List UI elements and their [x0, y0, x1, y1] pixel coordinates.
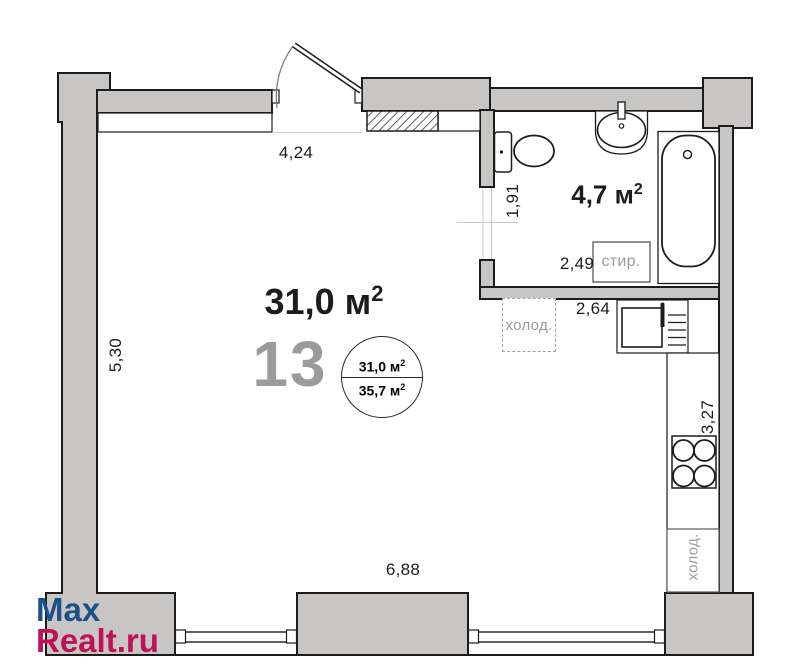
wall-bath-top-band — [490, 88, 705, 111]
watermark-line2: Realt.ru — [36, 625, 159, 656]
bathroom-area-label: 4,7 м2 — [571, 180, 643, 211]
wall-bottom-right — [665, 593, 753, 655]
wall-bottom-middle — [297, 593, 468, 655]
washer-label: стир. — [601, 253, 640, 271]
dim-top: 4,24 — [279, 143, 313, 163]
wall-top-right-block — [703, 78, 752, 128]
bathtub-icon — [658, 132, 719, 284]
fridge-label: холод. — [506, 317, 553, 334]
kitchen-sink-icon — [617, 300, 688, 353]
window-right-icon — [469, 630, 665, 643]
wall-bath-left-upper — [480, 110, 494, 187]
floor-plan: 4,24 5,30 6,88 1,91 2,49 2,64 3,27 31,0 … — [0, 0, 800, 667]
dim-kitchen-height: 3,27 — [698, 400, 718, 434]
bathroom-area-value: 4,7 м — [571, 180, 634, 210]
unit-number: 13 — [252, 327, 327, 401]
main-room-area-label: 31,0 м2 — [265, 281, 384, 323]
stove-icon — [672, 436, 716, 488]
fridge-lower-label: холод. — [685, 534, 702, 581]
dim-bath-width: 2,49 — [560, 254, 594, 274]
dim-bath-height: 1,91 — [503, 184, 523, 218]
area-badge: 31,0 м2 35,7 м2 — [341, 336, 423, 418]
bathroom-area-sup: 2 — [634, 181, 643, 198]
wall-bath-left-stub — [480, 260, 494, 287]
watermark: Max Realt.ru — [36, 594, 159, 656]
dim-left: 5,30 — [106, 338, 126, 372]
watermark-line1: Max — [36, 594, 159, 625]
area-badge-living: 31,0 м2 — [359, 354, 406, 377]
dim-kitchen-width: 2,64 — [576, 299, 610, 319]
area-badge-total: 35,7 м2 — [359, 378, 406, 401]
wall-right — [719, 126, 733, 595]
toilet-icon — [495, 132, 555, 172]
window-left-icon — [176, 630, 297, 643]
vent-shaft-icon — [367, 111, 438, 131]
entry-door-icon — [272, 45, 362, 108]
dim-bottom: 6,88 — [386, 560, 420, 580]
main-room-area-value: 31,0 м — [265, 281, 372, 322]
fridge-dashed-box: холод. — [502, 298, 556, 352]
wall-entry-block — [362, 78, 490, 111]
wall-top-left-band — [97, 90, 272, 113]
main-room-area-sup: 2 — [371, 281, 383, 306]
